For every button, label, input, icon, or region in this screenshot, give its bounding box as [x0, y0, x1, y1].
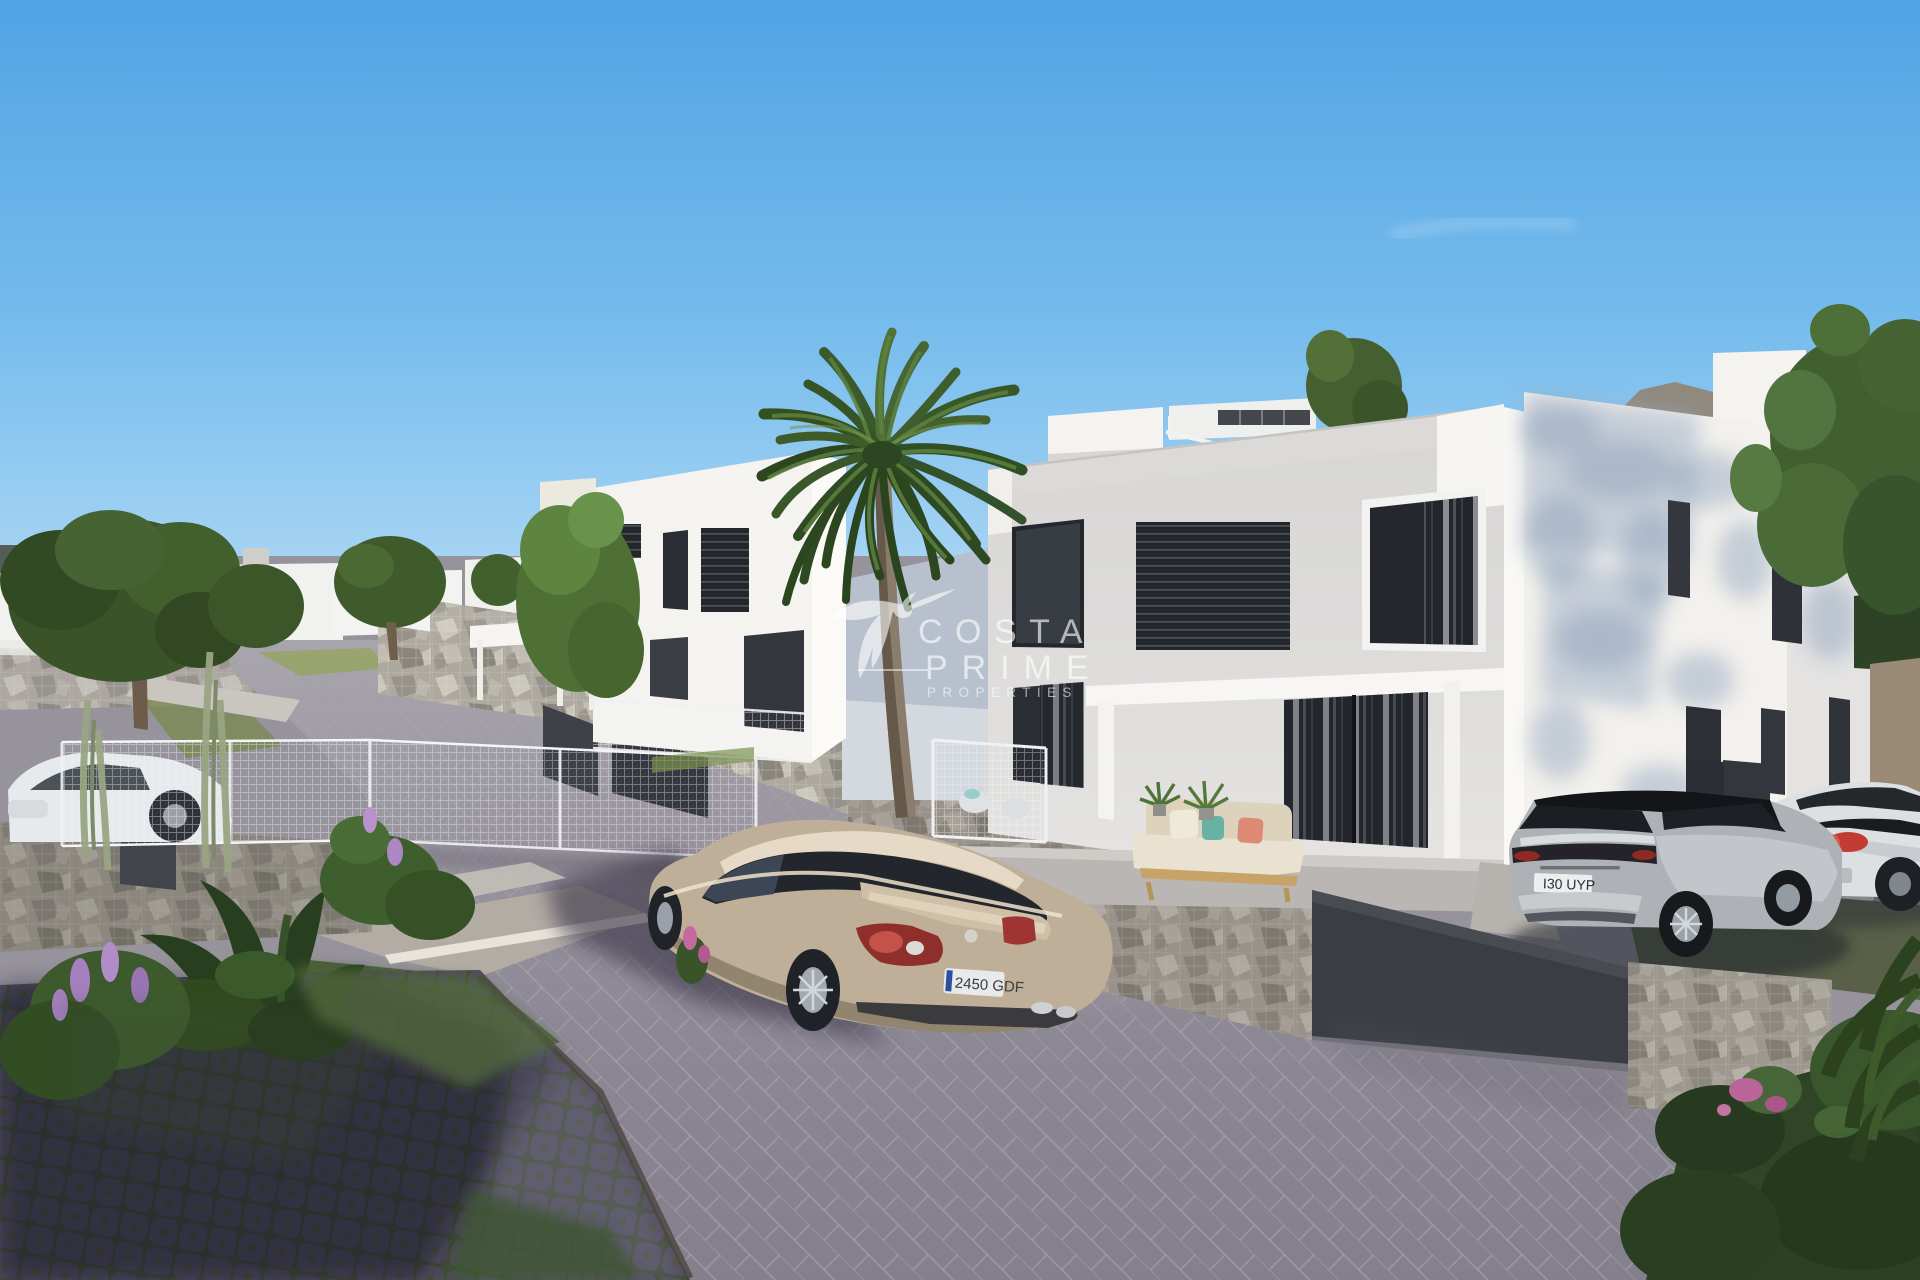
svg-text:PRIME: PRIME — [925, 649, 1103, 687]
svg-text:PROPERTIES: PROPERTIES — [927, 685, 1078, 700]
svg-text:COSTA: COSTA — [918, 613, 1095, 651]
svg-text:I30 UYP: I30 UYP — [1543, 875, 1596, 893]
